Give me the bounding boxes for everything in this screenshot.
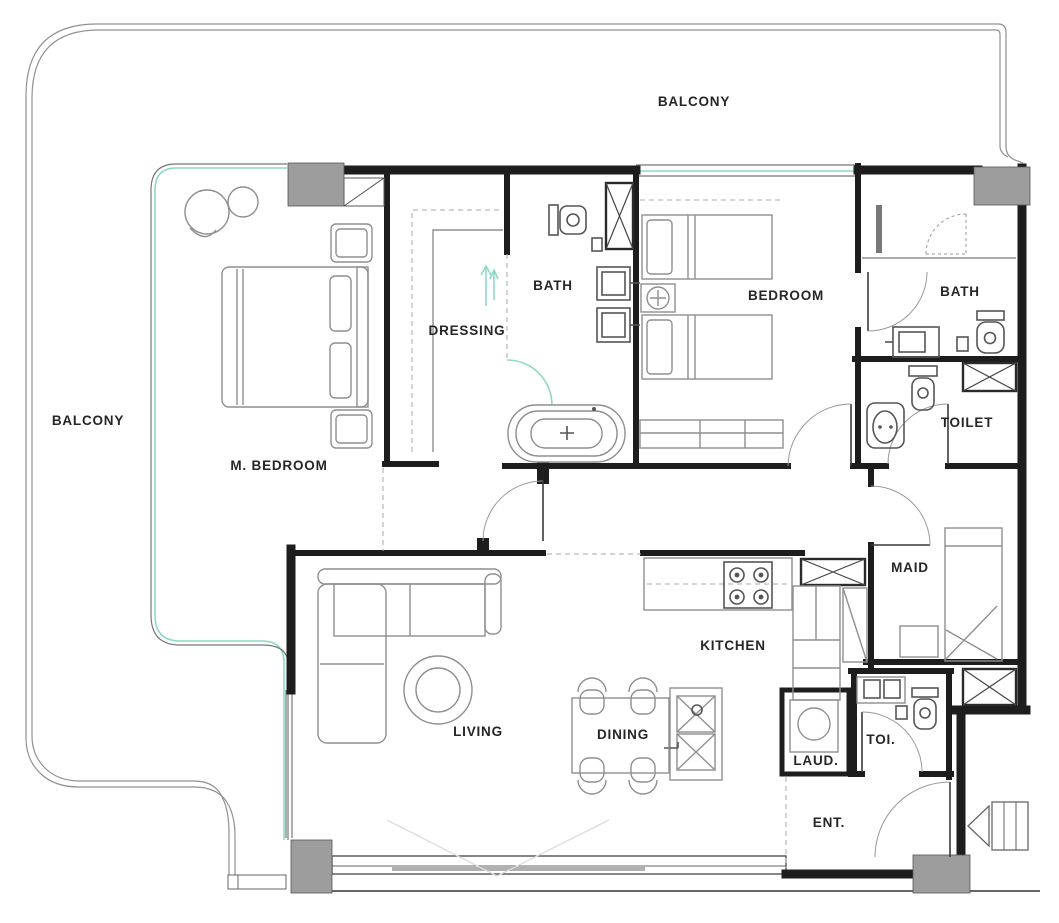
mirror	[876, 205, 882, 253]
room-label-bath-2: BATH	[940, 284, 980, 299]
bath2-door	[868, 272, 927, 331]
column	[913, 855, 970, 893]
kitchen-sink-island	[664, 688, 722, 780]
waste-bin	[896, 706, 907, 719]
sink-counter	[857, 677, 905, 703]
bathtub	[508, 405, 625, 462]
room-label-toilet: TOILET	[941, 415, 994, 430]
closet	[843, 588, 867, 662]
toilet-fixtures	[867, 366, 937, 448]
waste-bin	[957, 337, 968, 351]
room-label-dining: DINING	[597, 727, 649, 742]
room-label-toi: TOI.	[866, 732, 895, 747]
entry-arrow	[968, 806, 989, 846]
structural-columns	[288, 163, 1030, 893]
dressing-wardrobe	[433, 230, 503, 452]
master-shower	[606, 183, 633, 249]
railing-end-post	[228, 875, 286, 889]
room-label-entrance: ENT.	[813, 815, 845, 830]
wash-basin	[867, 403, 904, 448]
toilet-fixture	[549, 205, 586, 235]
balcony-railing	[26, 24, 1023, 889]
headboard	[357, 267, 368, 407]
room-label-balcony-top: BALCONY	[658, 94, 730, 109]
entrance-door	[875, 782, 950, 857]
floor-plan-page: BALCONY BALCONY M. BEDROOM DRESSING BATH…	[0, 0, 1059, 923]
vanity	[885, 327, 939, 357]
doors	[481, 214, 966, 857]
shaft	[963, 669, 1016, 705]
coffee-table	[404, 656, 472, 724]
room-label-master-bath: BATH	[533, 278, 573, 293]
sofa	[318, 569, 501, 743]
toi-fixtures	[857, 677, 938, 729]
room-label-kitchen: KITCHEN	[700, 638, 766, 653]
bedroom-furniture	[640, 215, 783, 448]
pillow	[330, 276, 351, 331]
room-label-balcony-left: BALCONY	[52, 413, 124, 428]
stove	[724, 562, 772, 608]
living-window	[332, 856, 786, 874]
interior-walls	[291, 166, 1018, 777]
hall-door	[483, 481, 543, 541]
desk	[640, 420, 783, 448]
floor-plan-canvas: BALCONY BALCONY M. BEDROOM DRESSING BATH…	[0, 0, 1059, 923]
shaft	[963, 363, 1016, 391]
dashed-guides	[383, 200, 790, 868]
side-table	[228, 187, 258, 217]
entry-door-panel	[992, 802, 1028, 850]
column	[974, 167, 1030, 205]
room-label-dressing: DRESSING	[429, 323, 506, 338]
toilet-fixture	[912, 688, 938, 729]
double-bed	[222, 267, 368, 407]
room-label-living: LIVING	[453, 724, 503, 739]
bath2-fixtures	[876, 205, 1004, 357]
lounge-chair	[185, 190, 229, 234]
chair	[629, 678, 657, 714]
room-label-bedroom: BEDROOM	[748, 288, 824, 303]
column	[288, 163, 344, 206]
side-table	[900, 626, 938, 657]
glass-facade	[151, 164, 858, 874]
single-bed	[945, 528, 1002, 661]
service-shafts	[606, 183, 1016, 705]
shower-door-dashed	[926, 214, 966, 254]
kitchen-fixtures	[644, 558, 840, 780]
shaft	[801, 559, 865, 585]
toilet-door	[888, 404, 948, 464]
waste-bin	[592, 238, 602, 251]
laundry-fixtures	[790, 700, 838, 752]
nightstand	[641, 284, 675, 312]
master-bedroom-furniture	[185, 187, 372, 448]
chair	[578, 678, 606, 714]
twin-bed	[642, 315, 772, 379]
tall-cabinets	[793, 586, 840, 700]
toilet-fixture	[909, 366, 937, 410]
chair	[578, 758, 606, 794]
room-label-master-bedroom: M. BEDROOM	[230, 458, 327, 473]
pillow	[330, 343, 351, 398]
room-label-laundry: LAUD.	[793, 753, 838, 768]
room-label-maid: MAID	[891, 560, 929, 575]
toilet-fixture	[977, 311, 1004, 353]
maid-furniture	[843, 528, 1002, 662]
maid-door	[871, 486, 930, 545]
entrance-symbol	[968, 802, 1028, 850]
living-furniture	[318, 569, 645, 876]
bedroom-door	[788, 404, 851, 466]
twin-bed	[642, 215, 772, 279]
chair	[629, 758, 657, 794]
column	[291, 840, 332, 893]
